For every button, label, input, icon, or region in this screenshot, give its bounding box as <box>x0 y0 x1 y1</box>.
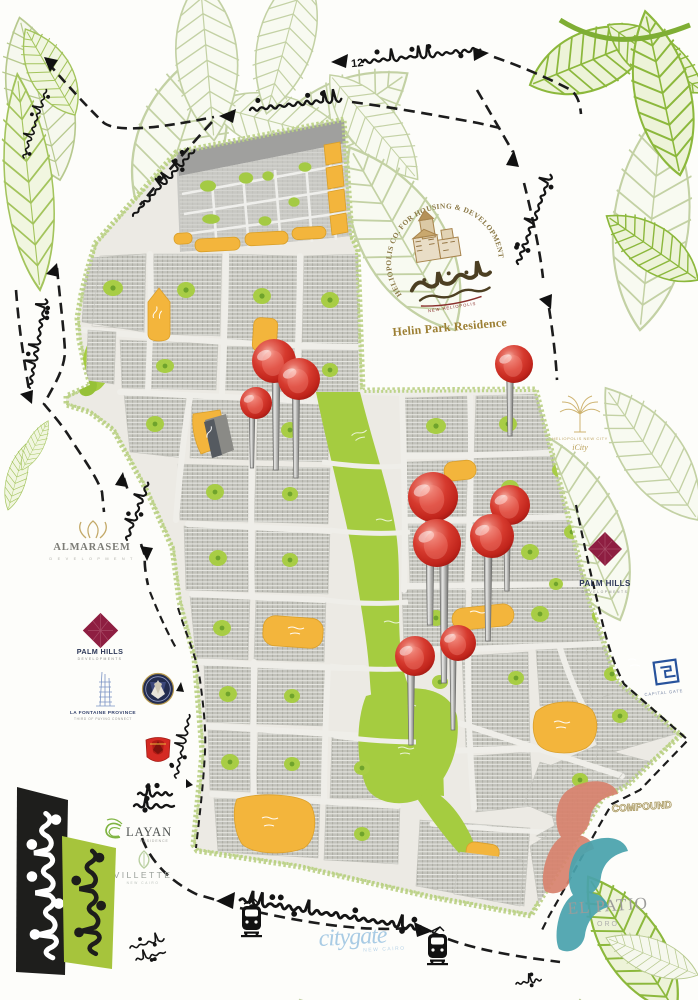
svg-text:D E V E L O P M E N T: D E V E L O P M E N T <box>49 557 134 561</box>
svg-text:DEVELOPMENTS: DEVELOPMENTS <box>581 590 628 594</box>
svg-text:PALM HILLS: PALM HILLS <box>579 579 631 588</box>
svg-text:DEVELOPMENTS: DEVELOPMENTS <box>78 657 123 661</box>
svg-text:PALM HILLS: PALM HILLS <box>77 647 124 656</box>
svg-text:THIRD OF PAYING CONNECT: THIRD OF PAYING CONNECT <box>74 717 132 721</box>
svg-text:12: 12 <box>351 57 364 70</box>
svg-text:RESIDENCE: RESIDENCE <box>140 839 169 843</box>
svg-text:NEW CAIRO: NEW CAIRO <box>127 881 160 885</box>
svg-text:VILLETTE: VILLETTE <box>114 870 173 880</box>
svg-text:LA FONTAINE PROVINCE: LA FONTAINE PROVINCE <box>70 710 136 716</box>
svg-text:HELIOPOLIS NEW CITY: HELIOPOLIS NEW CITY <box>552 436 608 441</box>
svg-text:iCity: iCity <box>572 443 588 452</box>
svg-text:LAYAN: LAYAN <box>126 825 172 839</box>
svg-text:ORO: ORO <box>597 921 619 928</box>
svg-text:ALMARASEM: ALMARASEM <box>53 542 130 553</box>
